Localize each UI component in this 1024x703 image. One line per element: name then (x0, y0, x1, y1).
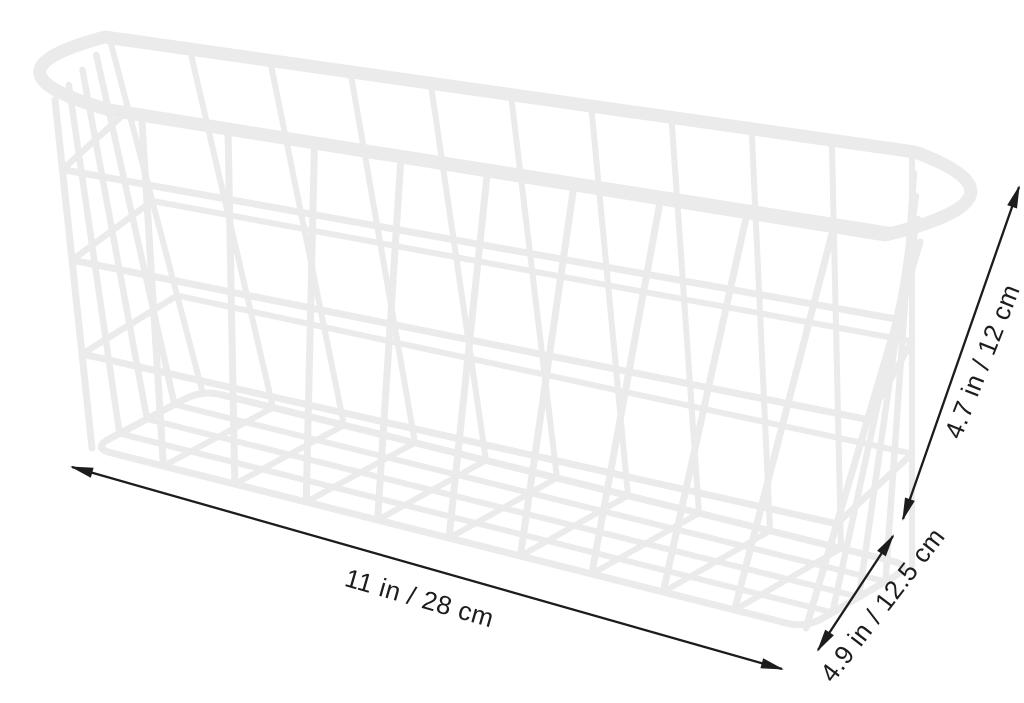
dimension-diagram-canvas: 11 in / 28 cm 4.7 in / 12 cm 4.9 in / 12… (0, 0, 1024, 703)
arrowhead (1007, 185, 1020, 208)
dimension-line (903, 187, 1019, 519)
dimension-line (72, 467, 782, 669)
arrowhead (70, 467, 94, 478)
height-dimension (902, 185, 1019, 521)
basket-wire (306, 143, 314, 502)
basket-wire (511, 95, 557, 478)
basket-wire (832, 139, 841, 548)
basket-wire (591, 106, 628, 496)
length-dimension (70, 467, 784, 670)
length-dimension-label: 11 in / 28 cm (342, 563, 498, 634)
wire-basket (40, 37, 971, 628)
arrowhead (760, 658, 784, 669)
product-dimension-figure: 11 in / 28 cm 4.7 in / 12 cm 4.9 in / 12… (0, 0, 1024, 703)
height-dimension-label: 4.7 in / 12 cm (938, 280, 1024, 443)
